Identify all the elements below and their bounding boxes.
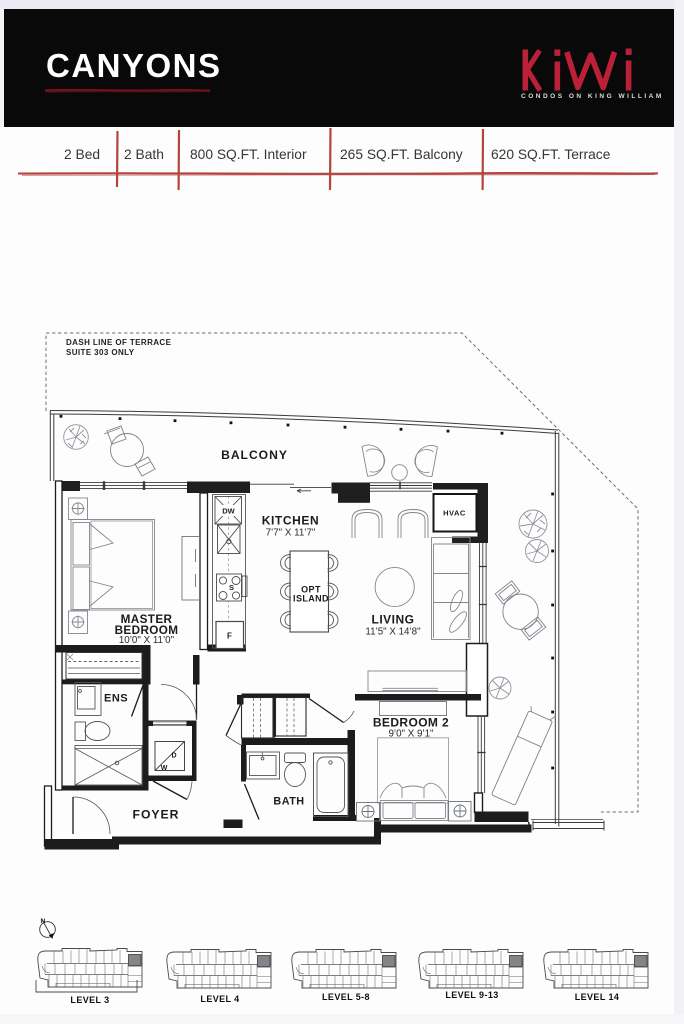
svg-text:10’0" X 11’0": 10’0" X 11’0" <box>119 635 175 646</box>
svg-text:ISLAND: ISLAND <box>293 594 329 604</box>
svg-text:KITCHEN: KITCHEN <box>262 514 320 528</box>
svg-text:S: S <box>229 583 234 592</box>
svg-text:BATH: BATH <box>273 796 304 808</box>
svg-text:D: D <box>171 753 176 760</box>
svg-text:N: N <box>41 918 46 925</box>
svg-text:LEVEL 3: LEVEL 3 <box>70 995 109 1005</box>
svg-text:LEVEL 4: LEVEL 4 <box>200 994 239 1004</box>
svg-text:SUITE 303 ONLY: SUITE 303 ONLY <box>66 348 135 357</box>
svg-text:DASH LINE OF TERRACE: DASH LINE OF TERRACE <box>66 338 172 347</box>
svg-text:LEVEL 14: LEVEL 14 <box>575 992 620 1002</box>
svg-text:HVAC: HVAC <box>443 509 466 518</box>
svg-text:9’0" X 9’1": 9’0" X 9’1" <box>388 729 434 740</box>
svg-text:BALCONY: BALCONY <box>221 448 288 462</box>
svg-text:F: F <box>227 632 232 641</box>
svg-text:W: W <box>161 765 168 772</box>
svg-text:DW: DW <box>222 507 235 516</box>
svg-text:LEVEL 9-13: LEVEL 9-13 <box>445 990 498 1000</box>
svg-text:LEVEL 5-8: LEVEL 5-8 <box>322 992 370 1002</box>
svg-text:BEDROOM 2: BEDROOM 2 <box>373 716 449 730</box>
svg-text:ENS: ENS <box>104 693 128 705</box>
svg-text:LIVING: LIVING <box>371 613 414 627</box>
svg-text:11’5" X 14’8": 11’5" X 14’8" <box>365 627 421 638</box>
svg-text:7’7" X 11’7": 7’7" X 11’7" <box>266 527 316 538</box>
svg-text:FOYER: FOYER <box>133 808 180 822</box>
